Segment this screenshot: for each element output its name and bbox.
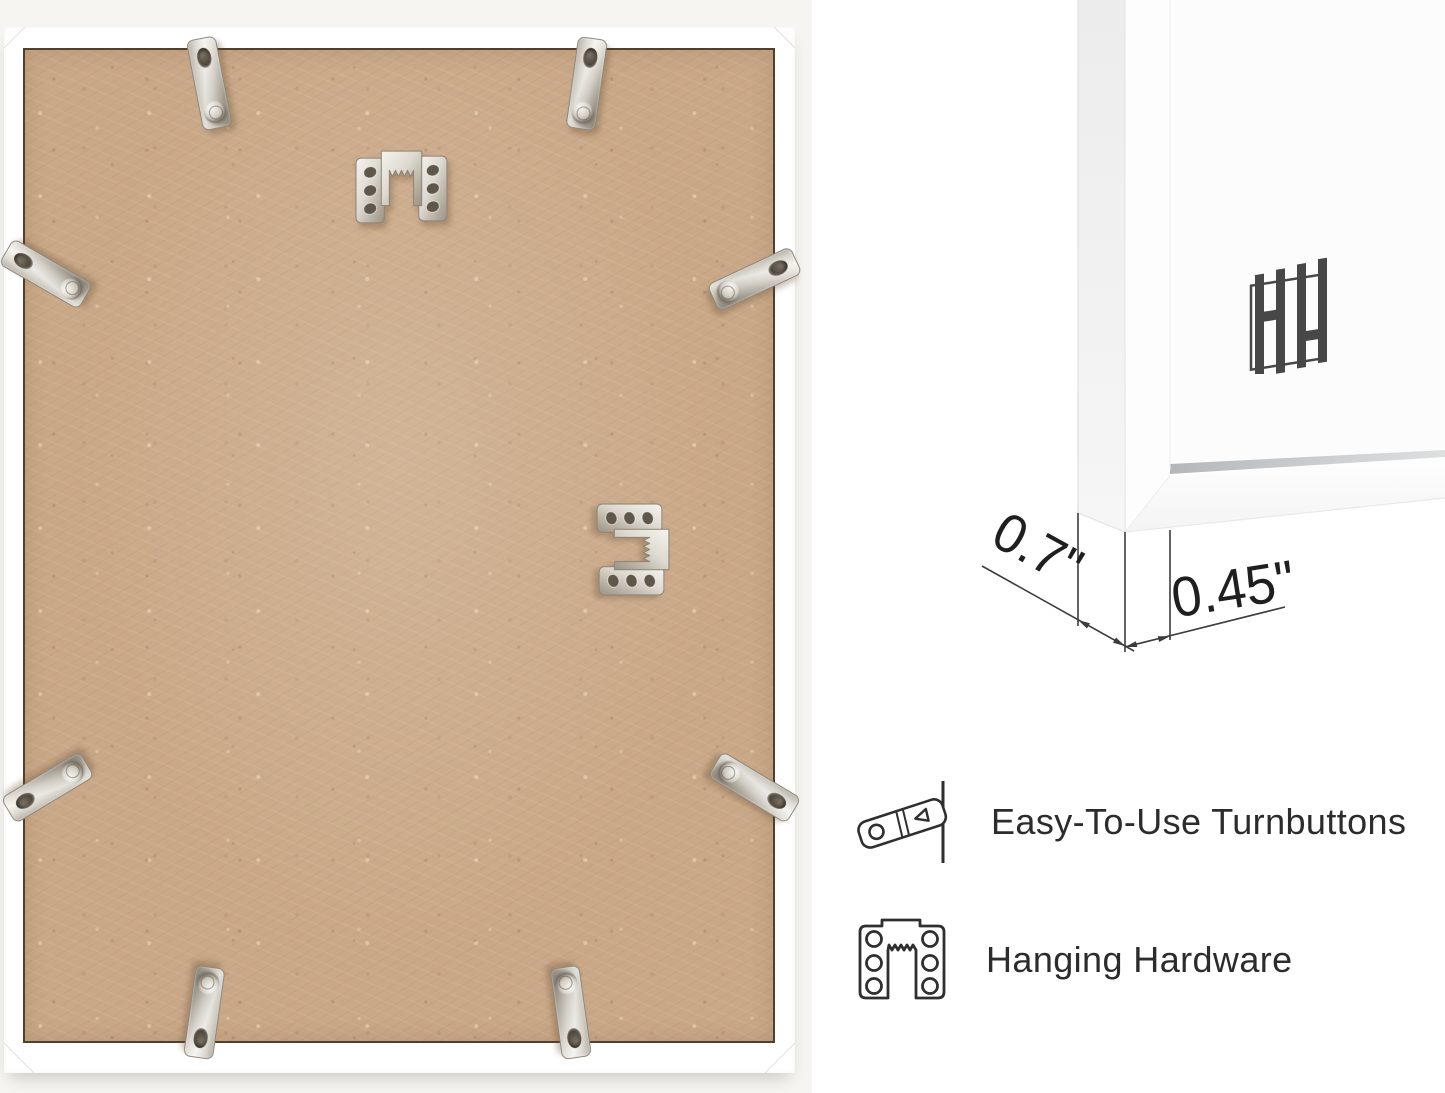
product-image: 0.7" 0.45" Easy-To-Use Turnbuttons Hangi…: [0, 0, 1445, 1093]
feature-turnbuttons-label: Easy-To-Use Turnbuttons: [991, 801, 1406, 843]
turnbutton: [549, 965, 592, 1060]
turnbutton-body: [0, 238, 93, 310]
frame-side-face: [1078, 0, 1125, 532]
turnbutton-icon: [852, 776, 957, 868]
turnbutton: [183, 965, 226, 1060]
turnbutton: [186, 35, 233, 131]
feature-turnbuttons: Easy-To-Use Turnbuttons: [852, 776, 1406, 868]
turnbutton: [0, 751, 94, 824]
feature-hanging-hardware-label: Hanging Hardware: [986, 939, 1293, 981]
turnbutton: [707, 246, 803, 312]
frame-miter-joint: [4, 27, 25, 48]
turnbutton-body: [0, 751, 94, 824]
frame-miter-joint: [765, 1043, 795, 1073]
turnbutton: [565, 36, 608, 131]
turnbutton: [0, 238, 93, 310]
frame-front-face: [1125, 0, 1170, 532]
frame-miter-joint: [4, 1043, 34, 1073]
feature-hanging-hardware: Hanging Hardware: [852, 912, 1293, 1007]
frame-back-photo: [0, 0, 812, 1093]
hh-logo: [1243, 247, 1331, 374]
turnbutton-body: [707, 246, 803, 312]
sawtooth-hanger: [592, 502, 671, 597]
turnbutton: [707, 751, 801, 824]
frame-miter-joint: [774, 27, 795, 48]
frame-back-panel: [1170, 0, 1445, 466]
sawtooth-hanger: [354, 149, 449, 228]
turnbutton-body: [707, 751, 801, 824]
frame-white-border: [4, 27, 795, 1073]
hanging-hardware-icon: [852, 912, 952, 1007]
mdf-back-board: [23, 48, 775, 1043]
